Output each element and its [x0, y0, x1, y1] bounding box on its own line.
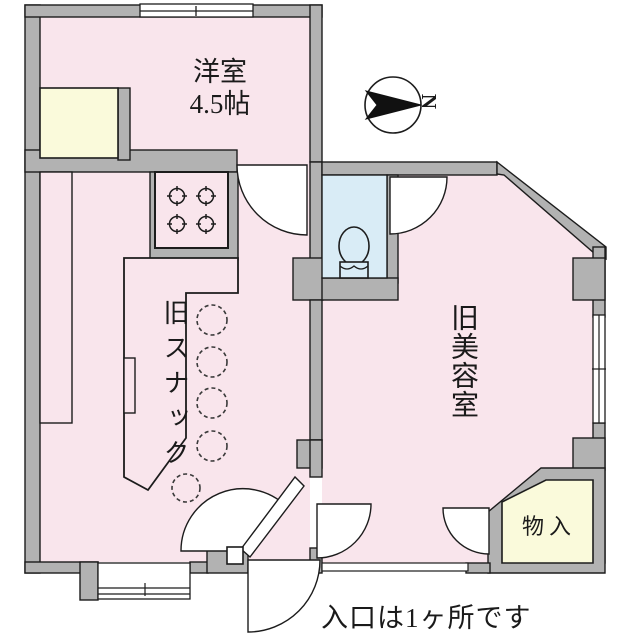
wall-bay-pier-right	[190, 562, 208, 573]
wall-center-lower	[310, 300, 322, 440]
toilet-icon	[339, 227, 369, 278]
wall-toilet-bottom	[322, 278, 398, 300]
wall-right-pillar-upper	[573, 258, 605, 300]
entry-pillar	[227, 547, 243, 564]
window-top	[140, 4, 253, 17]
wall-bay-pier-left	[80, 562, 98, 600]
west-room-name: 洋室	[193, 57, 247, 87]
door-entrance	[248, 560, 320, 632]
west-room-size: 4.5帖	[190, 89, 251, 119]
stove-icon	[155, 172, 228, 248]
label-west-room: 洋室4.5帖	[150, 57, 290, 120]
wall-center-pillar	[293, 258, 323, 300]
label-snack-room: 旧スナック	[156, 299, 193, 474]
wall-toilet-top	[322, 162, 497, 175]
floor-plan: 洋室4.5帖 旧スナック 旧美容室 物入 入口は1ヶ所です N	[0, 0, 640, 640]
wall-west-room-right	[310, 5, 322, 162]
closet	[40, 88, 118, 158]
wall-closet-right	[118, 88, 130, 160]
window-bay-bottom	[98, 563, 190, 599]
wall-right-pillar-lower	[573, 438, 605, 470]
wall-left	[25, 5, 40, 573]
label-entrance-note: 入口は1ヶ所です	[321, 596, 532, 635]
threshold-step	[322, 563, 468, 571]
label-beauty-room: 旧美容室	[442, 303, 482, 419]
bench-left	[40, 172, 72, 423]
floor-plan-drawing	[0, 0, 640, 640]
wall-bottom-right-stub	[466, 563, 490, 573]
label-compass-north: N	[416, 94, 441, 109]
compass-icon	[365, 77, 421, 133]
wall-center-stub	[310, 440, 322, 477]
bar-counter-shelf	[124, 358, 135, 413]
label-storage: 物入	[522, 509, 576, 541]
window-right	[592, 315, 606, 423]
